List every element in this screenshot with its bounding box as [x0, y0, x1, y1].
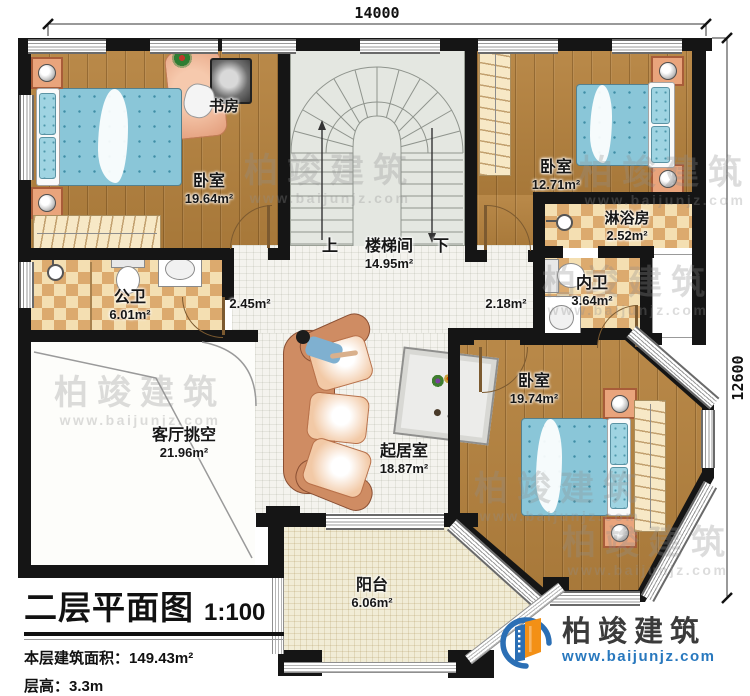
label-shower-room: 淋浴房2.52m² — [604, 210, 649, 244]
dimension-top: 14000 — [354, 4, 399, 22]
label-bedroom-ne: 卧室12.71m² — [532, 158, 580, 193]
brand-logo: 柏竣建筑 www.baijunjz.com — [498, 612, 715, 670]
label-bedroom-nw: 卧室19.64m² — [185, 172, 233, 207]
label-public-bath: 公卫6.01m² — [109, 288, 150, 323]
label-family-room: 起居室18.87m² — [380, 442, 428, 477]
brand-website: www.baijunjz.com — [562, 648, 715, 665]
brand-logo-icon — [498, 612, 554, 670]
floor-plan-canvas: 14000 12600 柏竣建筑 www.baijunjz.com 柏竣建筑 w… — [0, 0, 750, 696]
label-study: 书房 — [209, 98, 239, 116]
title-underline-thin — [24, 639, 284, 640]
title-block: 二层平面图 1:100 本层建筑面积：149.43m² 层高：3.3m — [24, 581, 284, 696]
label-hallway-left: 2.45m² — [229, 296, 270, 312]
brand-name: 柏竣建筑 — [562, 617, 715, 647]
label-stairwell: 楼梯间14.95m² — [365, 237, 413, 272]
label-ensuite: 内卫3.64m² — [571, 274, 612, 309]
label-stair-down: 下 — [433, 237, 449, 256]
label-stair-up: 上 — [322, 237, 338, 256]
floor-height-row: 层高：3.3m — [24, 675, 284, 696]
dimension-right: 12600 — [729, 355, 747, 400]
plan-title: 二层平面图 — [24, 581, 194, 629]
label-balcony: 阳台6.06m² — [351, 576, 392, 611]
label-bedroom-se: 卧室19.74m² — [510, 372, 558, 407]
label-living-void: 客厅挑空21.96m² — [152, 426, 216, 461]
label-hallway-right: 2.18m² — [485, 296, 526, 312]
title-underline — [24, 632, 284, 636]
plan-scale: 1:100 — [204, 599, 265, 629]
floor-area-row: 本层建筑面积：149.43m² — [24, 647, 284, 668]
